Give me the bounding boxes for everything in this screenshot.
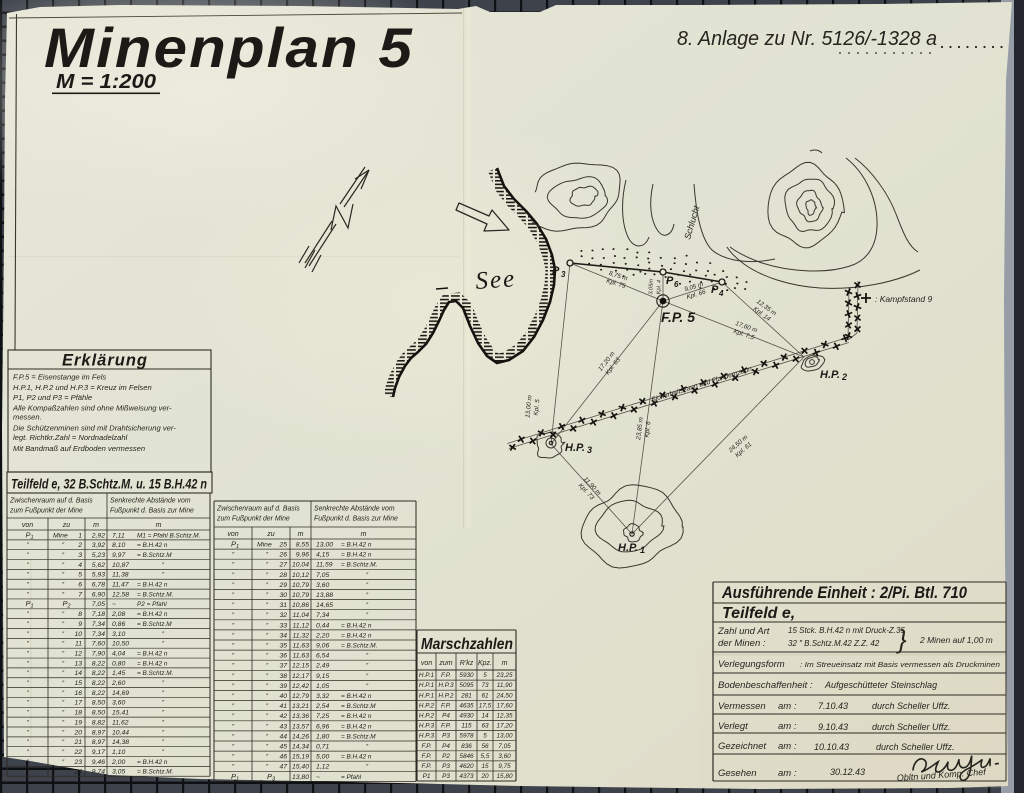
svg-text:Vermessen: Vermessen — [718, 701, 766, 712]
svg-text:1: 1 — [31, 604, 34, 610]
svg-text:5: 5 — [483, 733, 487, 740]
svg-text:1,05: 1,05 — [316, 683, 329, 690]
svg-text:21: 21 — [73, 739, 82, 746]
svg-text:30.12.43: 30.12.43 — [830, 767, 865, 777]
svg-text:6,90: 6,90 — [92, 591, 105, 598]
svg-text:M1 = Pfahl B.Schtz.M.: M1 = Pfahl B.Schtz.M. — [137, 532, 200, 539]
svg-text:20: 20 — [73, 729, 82, 736]
svg-text:= B.Schtz.M.: = B.Schtz.M. — [341, 643, 377, 650]
svg-text:2: 2 — [77, 542, 82, 549]
svg-text:9,17: 9,17 — [92, 749, 105, 756]
svg-text:11,32: 11,32 — [292, 632, 309, 639]
svg-text:= B.Schtz.M.: = B.Schtz.M. — [137, 591, 173, 598]
svg-text:12,42: 12,42 — [292, 683, 309, 690]
svg-text:10,44: 10,44 — [112, 729, 129, 736]
svg-text:m: m — [93, 522, 99, 529]
svg-text:3,60: 3,60 — [112, 700, 125, 707]
svg-text:5,62: 5,62 — [92, 562, 105, 569]
svg-text:zu: zu — [62, 522, 71, 529]
svg-text:13: 13 — [74, 660, 82, 667]
svg-text:9,96: 9,96 — [296, 552, 309, 559]
svg-text:2,54: 2,54 — [315, 703, 329, 710]
svg-text:5: 5 — [78, 572, 82, 579]
svg-text:Verlegt: Verlegt — [718, 721, 748, 732]
svg-text:= B.Schtz.M: = B.Schtz.M — [341, 733, 376, 740]
svg-text:17,60: 17,60 — [497, 702, 513, 709]
svg-text:6: 6 — [78, 582, 82, 589]
svg-text:12,17: 12,17 — [292, 673, 309, 680]
svg-text:24,50: 24,50 — [496, 692, 513, 699]
svg-text:4620: 4620 — [459, 763, 474, 770]
svg-text:= Pfahl: = Pfahl — [341, 774, 362, 781]
svg-text:7,90: 7,90 — [92, 650, 105, 657]
svg-text:5,00: 5,00 — [316, 754, 329, 761]
svg-text:44: 44 — [279, 733, 287, 740]
svg-text:47: 47 — [279, 764, 287, 771]
svg-text:4: 4 — [78, 562, 82, 569]
svg-text:= B.H.42 n: = B.H.42 n — [341, 693, 372, 700]
svg-text:H.P.: H.P. — [820, 369, 840, 381]
svg-text:2,49: 2,49 — [315, 663, 329, 670]
svg-text:Mine: Mine — [53, 532, 68, 539]
svg-text:13,00: 13,00 — [316, 542, 333, 549]
svg-text:Marschzahlen: Marschzahlen — [421, 636, 513, 653]
svg-text:17,5: 17,5 — [479, 702, 492, 709]
svg-text:35: 35 — [279, 643, 287, 650]
svg-text:P2 = Pfahl: P2 = Pfahl — [137, 601, 167, 608]
svg-text:7,05: 7,05 — [316, 572, 329, 579]
svg-text:= B.H.42 n: = B.H.42 n — [341, 713, 372, 720]
svg-text:15,80: 15,80 — [497, 773, 513, 780]
svg-text:= B.H.42 n: = B.H.42 n — [137, 660, 168, 667]
svg-text:1: 1 — [236, 776, 239, 782]
svg-text:10,79: 10,79 — [292, 582, 309, 589]
svg-text:von: von — [421, 660, 432, 667]
svg-text:H.P.3: H.P.3 — [419, 723, 435, 730]
svg-text:P3: P3 — [442, 773, 450, 780]
svg-text:Fußpunkt d. Basis zur Mine: Fußpunkt d. Basis zur Mine — [110, 508, 194, 515]
svg-text:6,54: 6,54 — [316, 653, 329, 660]
svg-text:45: 45 — [279, 744, 287, 751]
svg-text:4: 4 — [718, 289, 724, 298]
svg-text:H.P.1: H.P.1 — [419, 672, 435, 679]
svg-text:M = 1:200: M = 1:200 — [56, 71, 156, 93]
svg-text:46: 46 — [279, 754, 287, 761]
svg-text:8,22: 8,22 — [92, 660, 105, 667]
svg-text:20: 20 — [480, 773, 489, 780]
svg-text:P: P — [552, 265, 560, 277]
svg-text:8,97: 8,97 — [92, 729, 105, 736]
svg-text:Ausführende Einheit : 2/Pi. B: Ausführende Einheit : 2/Pi. Btl. 710 — [721, 583, 967, 602]
svg-text:H.P.2: H.P.2 — [419, 702, 435, 709]
svg-text:12,79: 12,79 — [292, 693, 309, 700]
svg-text:7,25: 7,25 — [316, 713, 329, 720]
svg-text:7,05: 7,05 — [92, 601, 105, 608]
svg-text:zum Fußpunkt der Mine: zum Fußpunkt der Mine — [9, 508, 83, 515]
svg-text:10,12: 10,12 — [292, 572, 309, 579]
svg-text:H.P.1: H.P.1 — [419, 692, 435, 699]
svg-text:26: 26 — [278, 552, 287, 559]
svg-text:= B.H.42 n: = B.H.42 n — [137, 582, 168, 589]
svg-text:1: 1 — [236, 544, 239, 550]
svg-text:12,58: 12,58 — [112, 591, 129, 598]
svg-text:H.P.: H.P. — [618, 542, 638, 554]
svg-text:43: 43 — [279, 723, 287, 730]
svg-text:32: 32 — [279, 612, 287, 619]
svg-text:durch Scheller Uffz.: durch Scheller Uffz. — [876, 742, 955, 752]
svg-text:2: 2 — [841, 372, 847, 382]
svg-text:Gezeichnet: Gezeichnet — [718, 741, 766, 752]
svg-text:10,50: 10,50 — [112, 641, 129, 648]
svg-text:29: 29 — [278, 582, 287, 589]
svg-text:Verlegungsform: Verlegungsform — [718, 659, 785, 670]
svg-text:2,20: 2,20 — [315, 632, 329, 639]
svg-text:Minenplan 5: Minenplan 5 — [44, 16, 414, 79]
svg-text:10,04: 10,04 — [292, 562, 309, 569]
svg-text:von: von — [22, 522, 33, 529]
svg-text:legt. Richtkr.Zahl = Nordnade: legt. Richtkr.Zahl = Nordnadelzahl — [13, 433, 128, 442]
svg-text:2: 2 — [67, 604, 71, 610]
svg-text:= B.H.42 n: = B.H.42 n — [341, 754, 372, 761]
svg-text:8,10: 8,10 — [112, 542, 125, 549]
svg-text:P: P — [711, 284, 719, 296]
svg-text:9,46: 9,46 — [92, 759, 105, 766]
svg-text:5,23: 5,23 — [92, 552, 105, 559]
svg-text:3,05m: 3,05m — [648, 279, 655, 295]
svg-text:zum: zum — [438, 660, 452, 667]
svg-text:11,63: 11,63 — [292, 653, 309, 660]
svg-text:2,60: 2,60 — [111, 680, 125, 687]
svg-text:Erklärung: Erklärung — [62, 352, 148, 370]
svg-text:am :: am : — [778, 701, 797, 712]
svg-text:16: 16 — [74, 690, 82, 697]
svg-text:1,45: 1,45 — [112, 670, 125, 677]
svg-text:36: 36 — [279, 653, 287, 660]
svg-text:4,15: 4,15 — [316, 552, 329, 559]
svg-text:11,12: 11,12 — [292, 622, 309, 629]
svg-text:11,38: 11,38 — [112, 572, 129, 579]
svg-text:H.P.1, H.P.2 und H.P.3 = Kreuz: H.P.1, H.P.2 und H.P.3 = Kreuz im Felsen — [13, 383, 152, 392]
svg-text:H.P.1: H.P.1 — [419, 682, 435, 689]
svg-text:= B.H.42 n: = B.H.42 n — [341, 552, 372, 559]
svg-text:durch Scheller Uffz.: durch Scheller Uffz. — [872, 701, 951, 711]
svg-text:zum Fußpunkt der Mine: zum Fußpunkt der Mine — [216, 516, 290, 523]
svg-text:3,60: 3,60 — [316, 582, 329, 589]
svg-text:1: 1 — [640, 545, 645, 555]
svg-text:9,15: 9,15 — [316, 673, 329, 680]
svg-text:F.P.: F.P. — [441, 723, 451, 730]
svg-text:Zwischenraum auf d. Basis: Zwischenraum auf d. Basis — [9, 498, 93, 505]
svg-text:der Minen :: der Minen : — [718, 638, 766, 649]
svg-text:8,22: 8,22 — [92, 670, 105, 677]
svg-text:P4: P4 — [442, 743, 450, 750]
svg-text:7,11: 7,11 — [112, 532, 125, 539]
svg-text:3: 3 — [78, 552, 82, 559]
svg-text:1,80: 1,80 — [316, 733, 329, 740]
svg-text:15,41: 15,41 — [112, 710, 129, 717]
svg-text:13,36: 13,36 — [292, 713, 309, 720]
svg-text:11,59: 11,59 — [316, 562, 333, 569]
svg-text:7,34: 7,34 — [92, 631, 105, 638]
svg-text:14,34: 14,34 — [292, 744, 309, 751]
svg-text:: Im Streueinsatz mit Basis: : Im Streueinsatz mit Basis vermessen al… — [800, 660, 1000, 669]
svg-text:7: 7 — [78, 591, 82, 598]
svg-text:3,92: 3,92 — [92, 542, 105, 549]
svg-text:5930: 5930 — [459, 672, 474, 679]
svg-text:= B.Schtz.M.: = B.Schtz.M. — [341, 562, 377, 569]
svg-text:Aufgeschütteter Steinschlag: Aufgeschütteter Steinschlag — [824, 680, 937, 690]
svg-text:4930: 4930 — [459, 713, 474, 720]
svg-text:= B.H.42 n: = B.H.42 n — [341, 622, 372, 629]
svg-text:6: 6 — [674, 280, 679, 289]
svg-text:14,26: 14,26 — [292, 733, 309, 740]
svg-text:33: 33 — [279, 622, 287, 629]
svg-text:9,06: 9,06 — [316, 643, 329, 650]
svg-text:am :: am : — [778, 741, 797, 752]
svg-text:39: 39 — [279, 683, 287, 690]
svg-text:9,97: 9,97 — [112, 552, 125, 559]
svg-text:11,63: 11,63 — [292, 643, 309, 650]
svg-text:8,97: 8,97 — [92, 739, 105, 746]
svg-text:15: 15 — [74, 680, 82, 687]
svg-text:8,55: 8,55 — [296, 542, 309, 549]
svg-text:12,35: 12,35 — [497, 713, 513, 720]
svg-text:24: 24 — [73, 769, 82, 776]
svg-text:17: 17 — [74, 700, 82, 707]
svg-text:13,80: 13,80 — [292, 774, 309, 781]
svg-text:13,21: 13,21 — [292, 703, 309, 710]
svg-text:am :: am : — [778, 768, 797, 779]
svg-text:3,05: 3,05 — [112, 769, 125, 776]
svg-text:P1, P2 und P3 = Pfähle: P1, P2 und P3 = Pfähle — [13, 393, 92, 402]
svg-text:H.P.: H.P. — [565, 442, 585, 454]
svg-text:durch Scheller Uffz.: durch Scheller Uffz. — [872, 722, 951, 732]
svg-text:2,08: 2,08 — [111, 611, 125, 618]
svg-text:22: 22 — [73, 749, 82, 756]
svg-text:38: 38 — [279, 673, 287, 680]
svg-text:11,90: 11,90 — [497, 682, 513, 689]
svg-text:P4: P4 — [442, 713, 450, 720]
svg-text:= B.Schtz.M: = B.Schtz.M — [341, 703, 376, 710]
svg-text:H.P.2: H.P.2 — [419, 713, 435, 720]
svg-text:1,12: 1,12 — [316, 764, 329, 771]
svg-text:3,10: 3,10 — [112, 631, 125, 638]
svg-text:9,75: 9,75 — [498, 763, 511, 770]
svg-text:7,34: 7,34 — [92, 621, 105, 628]
svg-text:8,50: 8,50 — [92, 710, 105, 717]
svg-text:7,60: 7,60 — [92, 641, 105, 648]
svg-text:3,60: 3,60 — [498, 753, 511, 760]
svg-text:Senkrechte Abstände vom: Senkrechte Abstände vom — [110, 498, 191, 505]
svg-text:7.10.43: 7.10.43 — [818, 701, 848, 711]
svg-text:Die Schützenminen sind mit Dr: Die Schützenminen sind mit Drahtsicherun… — [13, 424, 176, 433]
svg-text:32 ″ B.Schtz.M.42 Z.Z: 32 ″ B.Schtz.M.42 Z.Z. 42 — [788, 639, 880, 648]
svg-text:6,96: 6,96 — [316, 723, 329, 730]
svg-text:m: m — [361, 531, 367, 538]
svg-text:Mine: Mine — [257, 542, 272, 549]
svg-text:~: ~ — [112, 601, 116, 608]
svg-text:= B.H.42 n: = B.H.42 n — [341, 632, 372, 639]
svg-text:6,78: 6,78 — [92, 582, 105, 589]
svg-text:P3: P3 — [442, 733, 450, 740]
svg-text:am :: am : — [778, 721, 797, 732]
svg-text:8,22: 8,22 — [92, 680, 105, 687]
svg-text:11: 11 — [75, 641, 82, 648]
svg-text:14,69: 14,69 — [112, 690, 129, 697]
svg-text:8,22: 8,22 — [92, 690, 105, 697]
svg-text:Senkrechte Abstände vom: Senkrechte Abstände vom — [314, 506, 395, 513]
svg-text:15: 15 — [481, 763, 489, 770]
svg-text:5: 5 — [483, 672, 487, 679]
svg-text:12: 12 — [74, 650, 82, 657]
svg-text:F.P.: F.P. — [441, 672, 451, 679]
svg-text:10.10.43: 10.10.43 — [814, 742, 849, 752]
svg-text:0,86: 0,86 — [112, 621, 125, 628]
svg-text:Bodenbeschaffenheit :: Bodenbeschaffenheit : — [718, 680, 813, 691]
svg-text:2 Minen auf 1,00 m: 2 Minen auf 1,00 m — [919, 635, 993, 645]
svg-text:10: 10 — [74, 631, 82, 638]
svg-text:9: 9 — [78, 621, 82, 628]
svg-text:2,92: 2,92 — [91, 532, 105, 539]
svg-text:13,88: 13,88 — [316, 592, 333, 599]
svg-text:F.P.5 = Eisenstange im Fels: F.P.5 = Eisenstange im Fels — [13, 373, 106, 382]
svg-text:messen.: messen. — [13, 413, 42, 422]
svg-text:3: 3 — [561, 270, 566, 279]
svg-text:13,57: 13,57 — [292, 723, 309, 730]
svg-text:61: 61 — [481, 692, 489, 699]
svg-text:41: 41 — [279, 703, 287, 710]
svg-text:7,34: 7,34 — [316, 612, 329, 619]
svg-text:Teilfeld e,: Teilfeld e, — [722, 605, 795, 622]
svg-text:18: 18 — [74, 710, 82, 717]
svg-text:0,80: 0,80 — [112, 660, 125, 667]
svg-text:5846: 5846 — [459, 753, 474, 760]
svg-text:1: 1 — [31, 535, 34, 541]
svg-text:Mit Bandmaß auf Erdboden verme: Mit Bandmaß auf Erdboden vermessen — [13, 444, 145, 453]
svg-text:= B.Schtz.M: = B.Schtz.M — [137, 552, 172, 559]
svg-text:m: m — [502, 660, 508, 667]
svg-text:11,62: 11,62 — [112, 719, 129, 726]
svg-text:= B.Schtz.M.: = B.Schtz.M. — [137, 769, 173, 776]
svg-text:9,74: 9,74 — [92, 769, 105, 776]
svg-text:Alle Kompaßzahlen sind ohne M: Alle Kompaßzahlen sind ohne Mißweisung v… — [12, 404, 172, 413]
svg-text:Kpl. 4: Kpl. 4 — [656, 280, 662, 295]
svg-text:8: 8 — [78, 611, 82, 618]
svg-text:5,5: 5,5 — [481, 753, 490, 760]
svg-text:8,82: 8,82 — [92, 719, 105, 726]
svg-text:P2: P2 — [442, 753, 450, 760]
svg-text:F.P.: F.P. — [421, 763, 431, 770]
svg-text:= B.H.42 n: = B.H.42 n — [137, 759, 168, 766]
svg-text:34: 34 — [279, 632, 287, 639]
svg-text:: Kampfstand 9: : Kampfstand 9 — [875, 294, 932, 304]
svg-text:4373: 4373 — [459, 773, 474, 780]
svg-text:= B.Schtz.M: = B.Schtz.M — [137, 621, 172, 628]
svg-text:14: 14 — [481, 713, 489, 720]
svg-text:42: 42 — [279, 713, 287, 720]
svg-text:~: ~ — [316, 774, 320, 781]
svg-text:3: 3 — [587, 445, 592, 455]
svg-text:7,18: 7,18 — [92, 611, 105, 618]
svg-text:F.P.: F.P. — [421, 753, 431, 760]
svg-text:3,32: 3,32 — [316, 693, 329, 700]
svg-text:von: von — [227, 531, 238, 538]
svg-text:13,00: 13,00 — [497, 733, 513, 740]
svg-text:P1: P1 — [423, 773, 431, 780]
svg-text:5095: 5095 — [459, 682, 474, 689]
svg-text:40: 40 — [279, 693, 287, 700]
svg-text:P: P — [666, 275, 674, 287]
svg-text:17,20: 17,20 — [497, 723, 513, 730]
svg-text:10,87: 10,87 — [112, 562, 129, 569]
svg-text:15,19: 15,19 — [292, 754, 309, 761]
svg-text:14: 14 — [74, 670, 82, 677]
svg-text:836: 836 — [461, 743, 472, 750]
svg-text:Teilfeld e, 32 B.Schtz.M. u.: Teilfeld e, 32 B.Schtz.M. u. 15 B.H.42 n — [11, 476, 207, 492]
svg-text:1,10: 1,10 — [112, 749, 125, 756]
svg-text:= B.H.42 n: = B.H.42 n — [341, 723, 372, 730]
svg-text:0,71: 0,71 — [316, 744, 329, 751]
svg-text:115: 115 — [461, 723, 472, 730]
svg-text:15,40: 15,40 — [292, 764, 309, 771]
svg-text:56: 56 — [481, 743, 489, 750]
svg-text:63: 63 — [481, 723, 489, 730]
svg-text:= B.H.42 n: = B.H.42 n — [137, 611, 168, 618]
svg-text:12,15: 12,15 — [292, 663, 309, 670]
svg-text:R'kz: R'kz — [460, 660, 474, 667]
svg-text:5978: 5978 — [459, 733, 474, 740]
svg-text:10,79: 10,79 — [292, 592, 309, 599]
svg-text:Kpz.: Kpz. — [478, 660, 492, 667]
svg-text:14,65: 14,65 — [316, 602, 333, 609]
svg-text:F.P.: F.P. — [441, 702, 451, 709]
svg-text:27: 27 — [278, 562, 287, 569]
svg-text:See: See — [475, 265, 517, 295]
svg-text:4635: 4635 — [459, 702, 474, 709]
svg-text:H.P.2: H.P.2 — [438, 692, 454, 699]
svg-text:15 Stck. B.H.42 n mit Druck-: 15 Stck. B.H.42 n mit Druck-Z.35 — [788, 626, 905, 635]
svg-text:= B.H.42 n: = B.H.42 n — [137, 542, 168, 549]
svg-text:m: m — [156, 522, 162, 529]
svg-text:11,47: 11,47 — [112, 582, 129, 589]
svg-text:P3: P3 — [442, 763, 450, 770]
svg-text:31: 31 — [279, 602, 287, 609]
svg-text:F.P. 5: F.P. 5 — [661, 309, 695, 325]
svg-text:37: 37 — [279, 663, 287, 670]
svg-text:Zwischenraum auf d. Basis: Zwischenraum auf d. Basis — [216, 506, 300, 513]
svg-text:F.P.: F.P. — [421, 743, 431, 750]
svg-text:9.10.43: 9.10.43 — [818, 722, 848, 732]
svg-text:= B.H.42 n: = B.H.42 n — [137, 650, 168, 657]
svg-text:30: 30 — [279, 592, 287, 599]
svg-text:14,38: 14,38 — [112, 739, 129, 746]
svg-text:7,05: 7,05 — [498, 743, 511, 750]
svg-text:5,93: 5,93 — [92, 572, 105, 579]
svg-text:Gesehen: Gesehen — [718, 768, 757, 779]
svg-text:10,86: 10,86 — [292, 602, 309, 609]
svg-text:Zahl und Art: Zahl und Art — [717, 626, 770, 637]
svg-text:4,04: 4,04 — [112, 650, 125, 657]
svg-text:25: 25 — [278, 542, 287, 549]
svg-text:H.P.3: H.P.3 — [438, 682, 454, 689]
svg-text:0,44: 0,44 — [316, 622, 329, 629]
svg-text:8,50: 8,50 — [92, 700, 105, 707]
svg-text:19: 19 — [74, 719, 82, 726]
svg-text:Fußpunkt d. Basis zur Mine: Fußpunkt d. Basis zur Mine — [314, 516, 398, 523]
svg-text:23: 23 — [73, 759, 82, 766]
svg-text:= B.Schtz.M.: = B.Schtz.M. — [137, 670, 173, 677]
svg-text:= B.H.42 n: = B.H.42 n — [341, 542, 372, 549]
